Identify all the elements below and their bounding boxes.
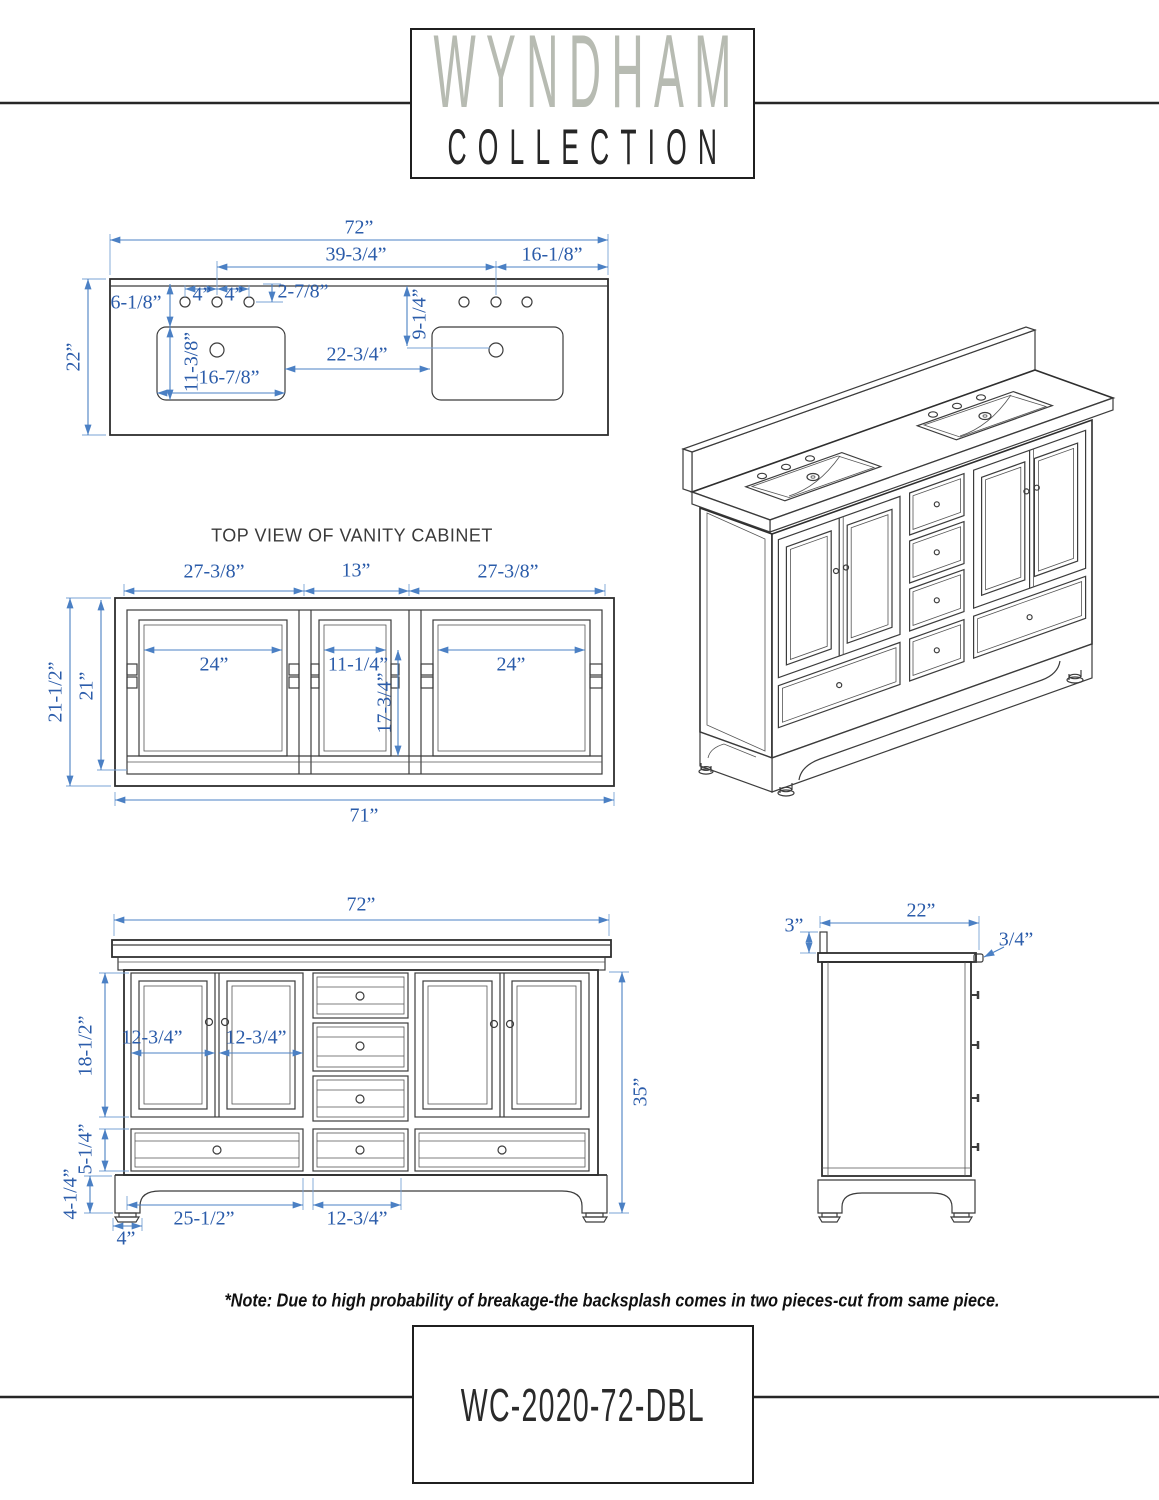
brand-logo: WYNDHAM COLLECTION [410,28,755,179]
dim-fv-bottom-drawer: 25-1/2” [173,1208,234,1231]
model-number-box: WC-2020-72-DBL [412,1325,754,1484]
dim-countertop-width: 72” [345,217,374,240]
dim-sv-backsplash: 3” [785,915,804,938]
dim-fv-mid-drawer: 12-3/4” [326,1208,387,1231]
dim-fv-height: 35” [630,1078,653,1107]
brand-name-collection: COLLECTION [437,122,729,172]
isometric-view-lines [683,327,1113,796]
dim-tv-depth-inner: 21” [76,672,99,701]
cabinet-top-view-lines [66,584,614,806]
dim-tv-mid-section: 13” [342,560,371,583]
dim-countertop-depth: 22” [63,343,86,372]
dim-countertop-right-offset: 16-1/8” [521,244,582,267]
dim-tv-left-section: 27-3/8” [183,561,244,584]
dim-countertop-hole-spacing-1: 4” [193,284,212,307]
dim-sink-width: 16-7/8” [198,367,259,390]
dim-fv-drawer-height: 5-1/4” [75,1123,98,1174]
dim-countertop-edge-to-sink: 6-1/8” [110,292,161,315]
brand-name-wyndham: WYNDHAM [423,32,742,113]
dim-fv-base-height: 4-1/4” [60,1168,83,1219]
dim-tv-depth-outer: 21-1/2” [45,661,68,722]
dim-sv-counter-thickness: 3/4” [999,929,1033,952]
dim-fv-door-height: 18-1/2” [75,1015,98,1076]
dim-countertop-top-to-hole: 2-7/8” [277,281,328,304]
top-view-title: TOP VIEW OF VANITY CABINET [211,526,493,547]
dim-tv-mid-depth: 17-3/4” [374,672,397,733]
dim-sv-depth: 22” [907,900,936,923]
front-view-lines [84,914,629,1231]
side-view-lines [800,916,1004,1222]
dim-fv-foot: 4” [117,1228,136,1251]
dim-tv-left-opening: 24” [200,654,229,677]
spec-sheet-page: WYNDHAM COLLECTION 72” 39-3/4” 16-1/8” 6… [0,0,1159,1500]
dim-fv-door-1: 12-3/4” [121,1027,182,1050]
dim-fv-door-2: 12-3/4” [225,1027,286,1050]
dim-fv-width: 72” [347,894,376,917]
model-number: WC-2020-72-DBL [461,1378,705,1432]
dim-tv-right-opening: 24” [497,654,526,677]
dim-tv-width: 71” [350,805,379,828]
breakage-note: *Note: Due to high probability of breaka… [224,1291,999,1312]
dim-countertop-center-to-center: 39-3/4” [325,244,386,267]
dim-between-sinks: 22-3/4” [326,344,387,367]
drawing-svg [0,0,1159,1500]
dim-countertop-hole-spacing-2: 4” [225,284,244,307]
dim-tv-right-section: 27-3/8” [477,561,538,584]
dim-to-drain: 9-1/4” [409,288,432,339]
